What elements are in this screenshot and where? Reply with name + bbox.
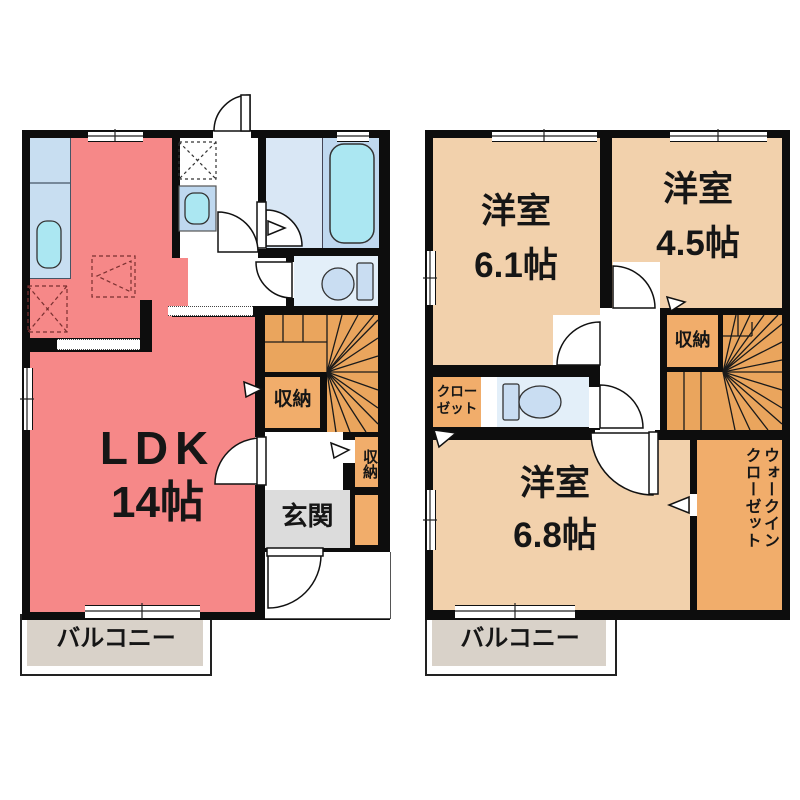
corridor-2f <box>600 308 660 430</box>
bedroom-45-size-label: 4.5帖 <box>612 226 784 262</box>
door-opening-storage-small <box>343 440 355 463</box>
bedroom-61-name-label: 洋室 <box>430 194 602 230</box>
window-balcony-slider-2f <box>455 605 575 619</box>
bedroom-68-size-label: 6.8帖 <box>460 518 650 554</box>
pass-through-opening-hall <box>168 306 253 316</box>
bedroom-45-name-label: 洋室 <box>612 172 784 208</box>
closet-label-line2: ゼット <box>431 401 483 418</box>
bedroom-61-size-label: 6.1帖 <box>430 248 602 284</box>
pass-through-opening-kitchen <box>57 339 140 350</box>
storage-label-2f: 収納 <box>667 331 718 350</box>
storage-label-1f: 収納 <box>265 390 320 410</box>
stairs-2f-upper <box>723 315 782 372</box>
hall-lower-1f <box>265 432 343 490</box>
entry-porch <box>265 552 391 619</box>
walk-in-closet-label: ウォークイン クローゼット <box>702 447 778 607</box>
floorplan-canvas: LDK 14帖 収納 収納 玄関 バルコニー 洋室 6.1帖 洋室 4.5帖 洋… <box>0 0 800 800</box>
window <box>426 490 436 550</box>
door-arc-icon <box>214 95 250 131</box>
door-leaf-icon <box>241 95 250 131</box>
entrance-side-strip <box>355 495 378 545</box>
hall-pocket-45 <box>613 262 660 308</box>
window <box>23 368 33 430</box>
window <box>492 131 597 142</box>
wic-label-col2: クローゼット <box>741 447 759 607</box>
bathtub-deck <box>322 138 379 248</box>
door-opening-toilet-2f <box>589 387 600 428</box>
room-washroom <box>180 138 258 258</box>
wic-label-col1: ウォークイン <box>760 447 778 607</box>
door-opening-wic <box>690 494 697 516</box>
ldk-size-label: 14帖 <box>70 480 245 526</box>
closet-label-line1: クロー <box>431 384 483 401</box>
room-ldk-connector <box>172 258 188 306</box>
stairs-2f-lower <box>667 372 782 430</box>
stairs-1f-lower <box>327 372 378 432</box>
hallway-1f <box>188 258 286 306</box>
window <box>337 131 369 142</box>
window-balcony-slider-1f <box>85 605 200 619</box>
balcony-label-2f: バルコニー <box>434 627 606 652</box>
entrance-label: 玄関 <box>265 503 350 530</box>
hall-pocket-61 <box>553 315 600 365</box>
door-opening-bedroom-68 <box>595 430 655 440</box>
window <box>670 131 767 142</box>
bedroom-68-name-label: 洋室 <box>460 466 650 502</box>
door-opening-toilet-1f <box>286 262 294 298</box>
door-opening-backdoor <box>213 131 251 140</box>
stairs-1f-upper <box>265 315 378 372</box>
kitchen-counter <box>30 138 71 279</box>
door-opening-ldk-hall <box>255 437 265 485</box>
ldk-room-label: LDK <box>70 425 245 473</box>
storage-small-label-1f: 収納 <box>356 441 378 487</box>
closet-label: クロー ゼット <box>431 384 483 418</box>
wall-stub <box>140 300 152 352</box>
window <box>88 131 143 142</box>
door-opening-closet <box>481 377 497 427</box>
room-toilet-1f <box>294 256 378 306</box>
balcony-label-1f: バルコニー <box>30 627 202 652</box>
room-ldk-mid <box>152 317 255 352</box>
door-opening-bathroom <box>258 203 266 249</box>
room-toilet-2f <box>497 377 589 427</box>
